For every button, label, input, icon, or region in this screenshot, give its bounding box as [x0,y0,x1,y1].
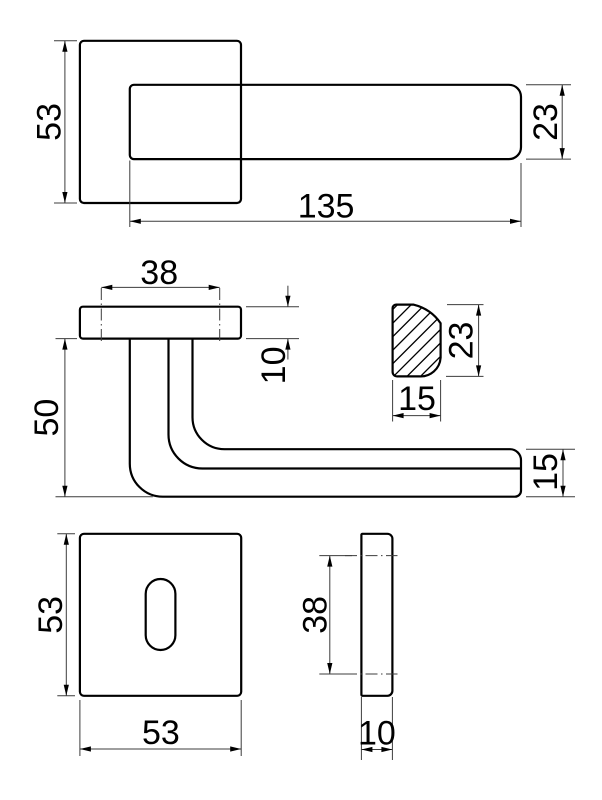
svg-text:10: 10 [255,346,293,384]
svg-text:38: 38 [140,254,178,292]
svg-text:23: 23 [443,322,481,360]
svg-text:10: 10 [358,715,396,753]
svg-text:23: 23 [527,103,565,141]
svg-text:15: 15 [398,380,436,418]
svg-text:38: 38 [296,596,334,634]
svg-text:50: 50 [28,399,66,437]
svg-text:15: 15 [527,453,565,491]
svg-text:53: 53 [30,103,68,141]
svg-text:53: 53 [142,714,180,752]
svg-text:135: 135 [298,187,355,225]
svg-text:53: 53 [32,596,70,634]
